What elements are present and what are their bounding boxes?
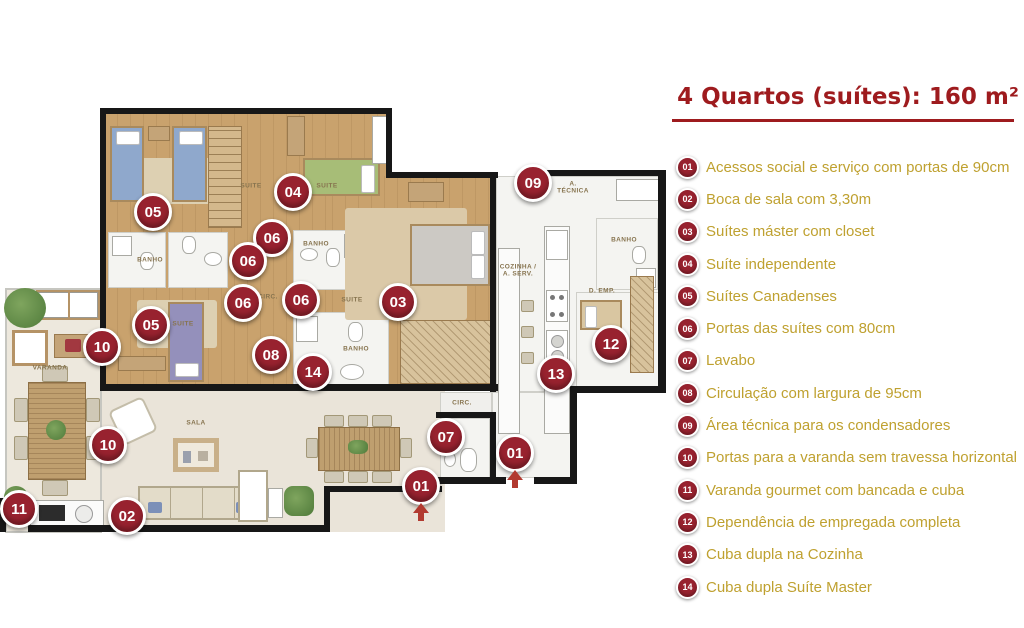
entry-arrow-icon [413,503,429,521]
plan-marker-14: 14 [294,353,332,391]
plan-marker-05: 05 [132,306,170,344]
page-title: 4 Quartos (suítes): 160 m² [676,84,1020,110]
plan-marker-03: 03 [379,283,417,321]
legend-item: 09Área técnica para os condensadores [676,409,1024,441]
legend-item: 05Suítes Canadenses [676,280,1024,312]
plan-marker-10: 10 [89,426,127,464]
plan-marker-02: 02 [108,497,146,535]
legend-label: Acessos social e serviço com portas de 9… [706,159,1009,176]
legend-badge: 02 [676,188,699,211]
legend-label: Suítes máster com closet [706,223,874,240]
legend-badge: 14 [676,576,699,599]
floor-plan-page: SUITESUITESUITESUITEBANHOBANHOBANHOBANHO… [0,0,1024,628]
legend-item: 10Portas para a varanda sem travessa hor… [676,442,1024,474]
plan-marker-11: 11 [0,490,38,528]
legend-label: Suítes Canadenses [706,288,837,305]
legend-label: Portas para a varanda sem travessa horiz… [706,449,1017,466]
plan-marker-12: 12 [592,325,630,363]
legend-label: Portas das suítes com 80cm [706,320,895,337]
legend-item: 14Cuba dupla Suíte Master [676,571,1024,603]
legend-item: 06Portas das suítes com 80cm [676,312,1024,344]
plan-marker-08: 08 [252,336,290,374]
legend-list: 01Acessos social e serviço com portas de… [676,151,1024,603]
plan-marker-09: 09 [514,164,552,202]
legend-badge: 08 [676,382,699,405]
legend-badge: 04 [676,253,699,276]
legend-item: 13Cuba dupla na Cozinha [676,539,1024,571]
floor-plan: SUITESUITESUITESUITEBANHOBANHOBANHOBANHO… [0,0,680,628]
legend-badge: 10 [676,446,699,469]
legend-badge: 11 [676,479,699,502]
legend-item: 08Circulação com largura de 95cm [676,377,1024,409]
plan-marker-06: 06 [282,281,320,319]
plan-marker-01: 01 [402,467,440,505]
legend-badge: 12 [676,511,699,534]
legend-badge: 09 [676,414,699,437]
legend-badge: 13 [676,543,699,566]
plan-marker-06: 06 [229,242,267,280]
entry-arrow-icon [507,470,523,488]
legend-badge: 07 [676,349,699,372]
legend-item: 04Suíte independente [676,248,1024,280]
legend-label: Dependência de empregada completa [706,514,960,531]
plan-marker-13: 13 [537,355,575,393]
legend-badge: 01 [676,156,699,179]
legend-item: 02Boca de sala com 3,30m [676,183,1024,215]
legend-label: Varanda gourmet com bancada e cuba [706,482,964,499]
plan-marker-10: 10 [83,328,121,366]
legend-label: Boca de sala com 3,30m [706,191,871,208]
legend-label: Lavabo [706,352,755,369]
plan-marker-07: 07 [427,418,465,456]
legend-badge: 03 [676,220,699,243]
legend-label: Cuba dupla na Cozinha [706,546,863,563]
legend-item: 11Varanda gourmet com bancada e cuba [676,474,1024,506]
legend-item: 03Suítes máster com closet [676,216,1024,248]
plan-marker-05: 05 [134,193,172,231]
legend-label: Cuba dupla Suíte Master [706,579,872,596]
legend-label: Suíte independente [706,256,836,273]
legend-item: 12Dependência de empregada completa [676,506,1024,538]
legend-label: Circulação com largura de 95cm [706,385,922,402]
legend-item: 07Lavabo [676,345,1024,377]
plan-marker-01: 01 [496,434,534,472]
legend-item: 01Acessos social e serviço com portas de… [676,151,1024,183]
title-underline [672,119,1014,122]
markers-layer: 0904050606060603051008141213071001011102 [0,0,680,628]
plan-marker-06: 06 [224,284,262,322]
plan-marker-04: 04 [274,173,312,211]
legend-badge: 05 [676,285,699,308]
legend-badge: 06 [676,317,699,340]
legend-label: Área técnica para os condensadores [706,417,950,434]
